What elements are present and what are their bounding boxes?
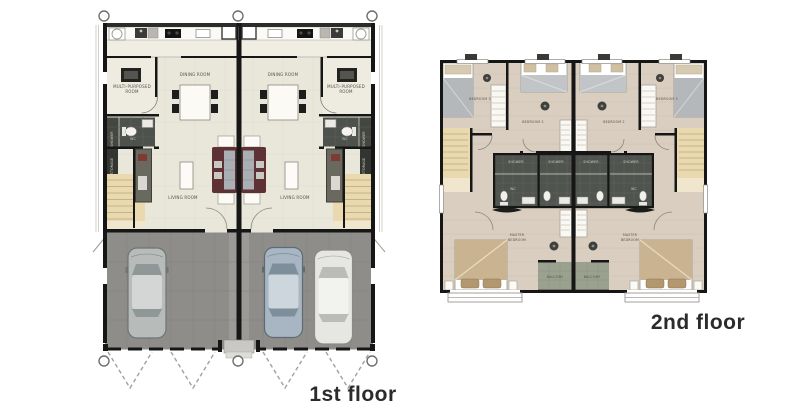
- bedroom-3-label: BEDROOM 3: [656, 97, 677, 101]
- car-icon: [126, 248, 169, 338]
- balcony-label: BALCONY: [584, 275, 601, 279]
- center-entry: [224, 340, 254, 358]
- second-floor-plan: BEDROOM 3 BEDROOM 2 SHOWER SHOWER WC MAS…: [425, 30, 755, 330]
- wc-label: WC: [631, 187, 637, 191]
- first-floor-plan: MULTI-PURPOSED ROOM DINING ROOM LIVING R…: [85, 0, 405, 400]
- wc-label: WC: [510, 187, 516, 191]
- living-room-label: LIVING ROOM: [168, 195, 198, 200]
- shower-label: SHOWER: [548, 160, 564, 164]
- multi-purpose-room-label: ROOM: [125, 89, 139, 94]
- second-floor-right-unit-mirror: [574, 54, 708, 302]
- shower-label: SHOWER: [623, 160, 639, 164]
- wc-label: WC: [342, 137, 348, 141]
- wc-label: WC: [130, 137, 136, 141]
- storage-label: STORAGE: [362, 158, 366, 175]
- second-floor-left-unit: [440, 54, 574, 302]
- multi-purpose-room-label: ROOM: [339, 89, 353, 94]
- dining-room-label: DINING ROOM: [180, 72, 211, 77]
- bedroom-2-label: BEDROOM 2: [603, 120, 624, 124]
- bedroom-2-label: BEDROOM 2: [522, 120, 543, 124]
- bedroom-3-label: BEDROOM 3: [469, 97, 490, 101]
- master-bedroom-label: BEDROOM: [621, 238, 639, 242]
- car-icon: [262, 248, 305, 338]
- floor-plan-canvas: MULTI-PURPOSED ROOM DINING ROOM LIVING R…: [0, 0, 800, 420]
- master-bedroom-label: MASTER: [510, 233, 525, 237]
- storage-label: STORAGE: [110, 158, 114, 175]
- car-icon: [312, 250, 355, 344]
- shower-label: SHOWER: [110, 131, 114, 147]
- dining-room-label: DINING ROOM: [268, 72, 299, 77]
- shower-label: SHOWER: [362, 131, 366, 147]
- master-bedroom-label: BEDROOM: [508, 238, 526, 242]
- shower-label: SHOWER: [508, 160, 524, 164]
- living-room-label: LIVING ROOM: [280, 195, 310, 200]
- second-floor-caption: 2nd floor: [633, 311, 763, 335]
- balcony-label: BALCONY: [547, 275, 564, 279]
- master-bedroom-label: MASTER: [623, 233, 638, 237]
- first-floor-right-unit-mirror: [239, 23, 385, 352]
- shower-label: SHOWER: [583, 160, 599, 164]
- first-floor-caption: 1st floor: [288, 383, 418, 407]
